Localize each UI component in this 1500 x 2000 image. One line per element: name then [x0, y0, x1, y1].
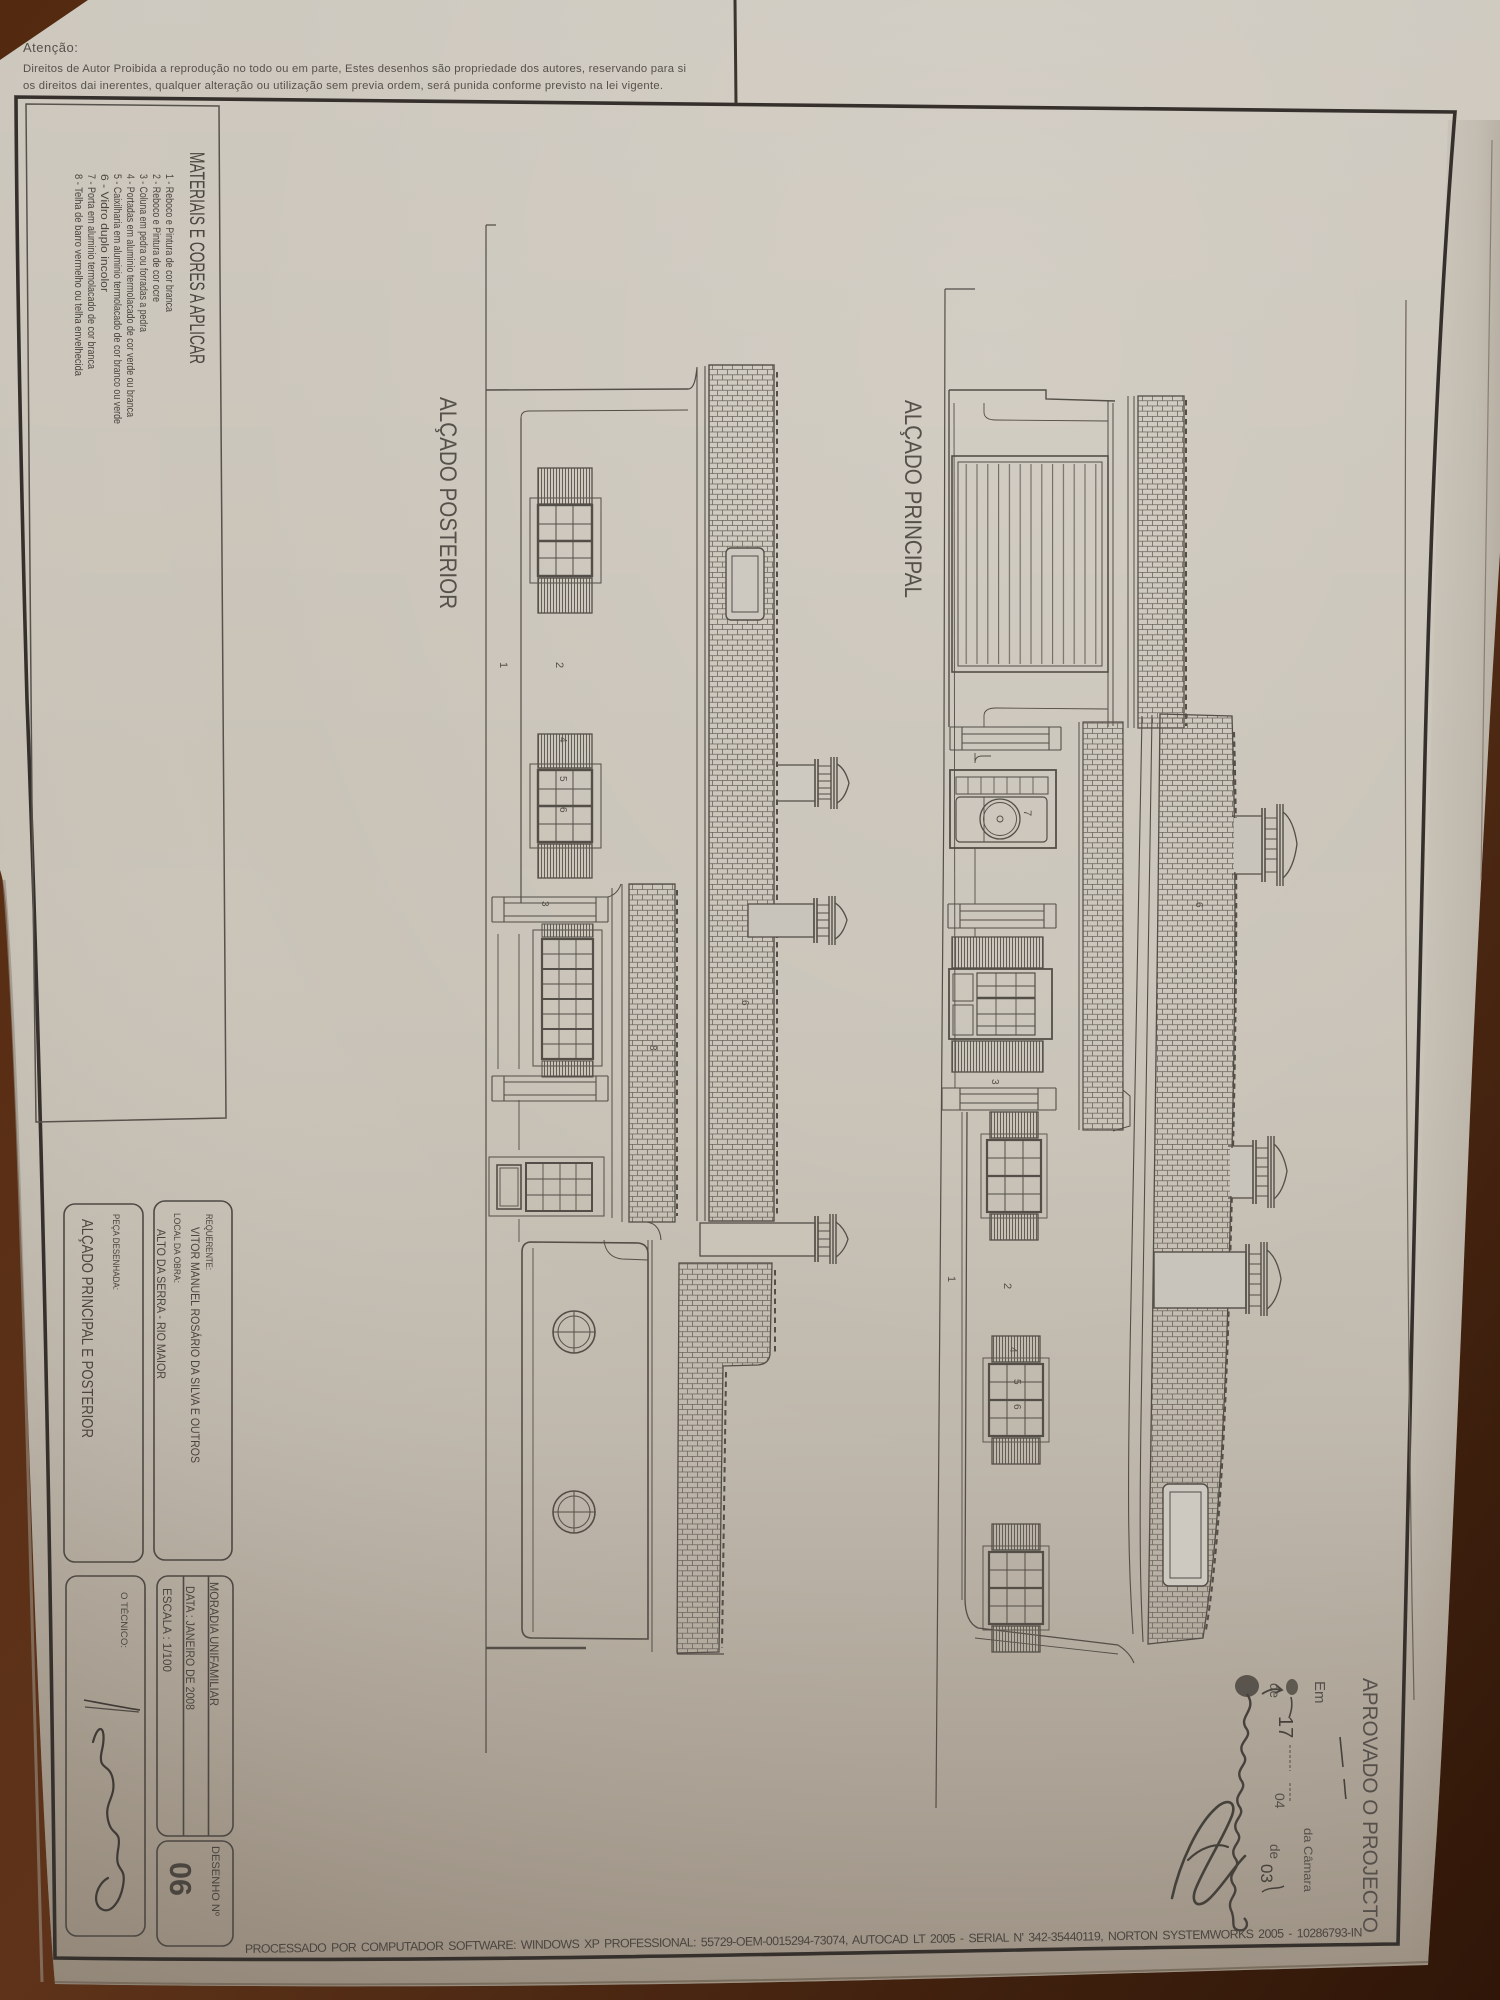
svg-text:04: 04	[1272, 1793, 1288, 1809]
svg-text:MATERIAIS E CORES A APLICAR: MATERIAIS E CORES A APLICAR	[185, 152, 209, 364]
svg-text:PEÇA DESENHADA:: PEÇA DESENHADA:	[110, 1214, 121, 1290]
svg-text:Em: Em	[1311, 1681, 1328, 1704]
svg-text:Atenção:: Atenção:	[23, 40, 78, 55]
svg-text:APROVADO O PROJECTO: APROVADO O PROJECTO	[1358, 1678, 1382, 1933]
svg-text:6: 6	[1193, 902, 1204, 908]
svg-text:DESENHO Nº: DESENHO Nº	[209, 1846, 221, 1916]
svg-text:4 - Portadas em aluminio termo: 4 - Portadas em aluminio termolacado de …	[124, 174, 136, 418]
svg-text:4: 4	[1007, 1347, 1018, 1353]
svg-text:4: 4	[557, 737, 568, 743]
svg-text:ALÇADO PRINCIPAL: ALÇADO PRINCIPAL	[899, 400, 926, 598]
svg-text:O TÉCNICO:: O TÉCNICO:	[118, 1592, 129, 1648]
svg-text:17: 17	[1274, 1716, 1296, 1738]
svg-text:DATA : JANEIRO DE 2008: DATA : JANEIRO DE 2008	[183, 1586, 195, 1710]
svg-text:ESCALA : 1/100: ESCALA : 1/100	[160, 1588, 172, 1672]
svg-text:2 - Reboco e Pintura de cor oc: 2 - Reboco e Pintura de cor ocre	[150, 174, 162, 302]
svg-text:VITOR MANUEL ROSÁRIO DA SILVA: VITOR MANUEL ROSÁRIO DA SILVA E OUTROS	[188, 1227, 201, 1463]
svg-text:8 - Telha de barro vermelho ou: 8 - Telha de barro vermelho ou telha env…	[72, 174, 84, 377]
svg-text:1: 1	[497, 662, 509, 668]
svg-text:3: 3	[539, 901, 550, 907]
svg-text:ALÇADO PRINCIPAL E POSTERIOR: ALÇADO PRINCIPAL E POSTERIOR	[78, 1219, 95, 1438]
svg-text:os direitos dai inerentes, qua: os direitos dai inerentes, qualquer alte…	[23, 80, 663, 92]
svg-text:7: 7	[1021, 810, 1033, 816]
svg-text:REQUERENTE:: REQUERENTE:	[203, 1214, 214, 1270]
svg-text:ALTO DA SERRA - RIO MAIOR: ALTO DA SERRA - RIO MAIOR	[154, 1229, 166, 1379]
svg-text:de: de	[1267, 1844, 1282, 1859]
svg-text:LOCAL DA OBRA:: LOCAL DA OBRA:	[171, 1213, 182, 1283]
svg-text:2: 2	[1001, 1283, 1013, 1289]
svg-text:3: 3	[989, 1079, 1000, 1085]
svg-text:8: 8	[647, 1045, 658, 1051]
svg-text:2: 2	[553, 662, 565, 668]
svg-text:03: 03	[1257, 1864, 1276, 1883]
svg-text:ALÇADO POSTERIOR: ALÇADO POSTERIOR	[434, 397, 461, 609]
svg-text:06: 06	[163, 1862, 198, 1896]
svg-text:7 - Porta em aluminio termolac: 7 - Porta em aluminio termolacado de cor…	[85, 174, 97, 370]
svg-text:5: 5	[557, 776, 568, 782]
svg-text:Direitos de Autor Proibida a r: Direitos de Autor Proibida a reprodução …	[23, 63, 686, 75]
svg-text:6 - Vidro duplo incolor: 6 - Vidro duplo incolor	[98, 174, 110, 292]
svg-text:6: 6	[557, 807, 568, 813]
svg-text:5 - Caixilharia em aluminio te: 5 - Caixilharia em aluminio termolacado …	[111, 174, 123, 424]
svg-text:6: 6	[739, 1000, 750, 1006]
svg-text:da Câmara: da Câmara	[1301, 1828, 1315, 1892]
svg-text:6: 6	[1011, 1404, 1022, 1410]
svg-text:3 - Coluna em pedra ou forrada: 3 - Coluna em pedra ou forradas a pedra	[137, 174, 149, 333]
svg-text:1: 1	[945, 1276, 957, 1282]
svg-text:5: 5	[1011, 1379, 1022, 1385]
svg-text:MORADIA UNIFAMILIAR: MORADIA UNIFAMILIAR	[207, 1582, 221, 1706]
svg-text:1 - Reboco e Pintura de cor br: 1 - Reboco e Pintura de cor branca	[163, 174, 175, 313]
